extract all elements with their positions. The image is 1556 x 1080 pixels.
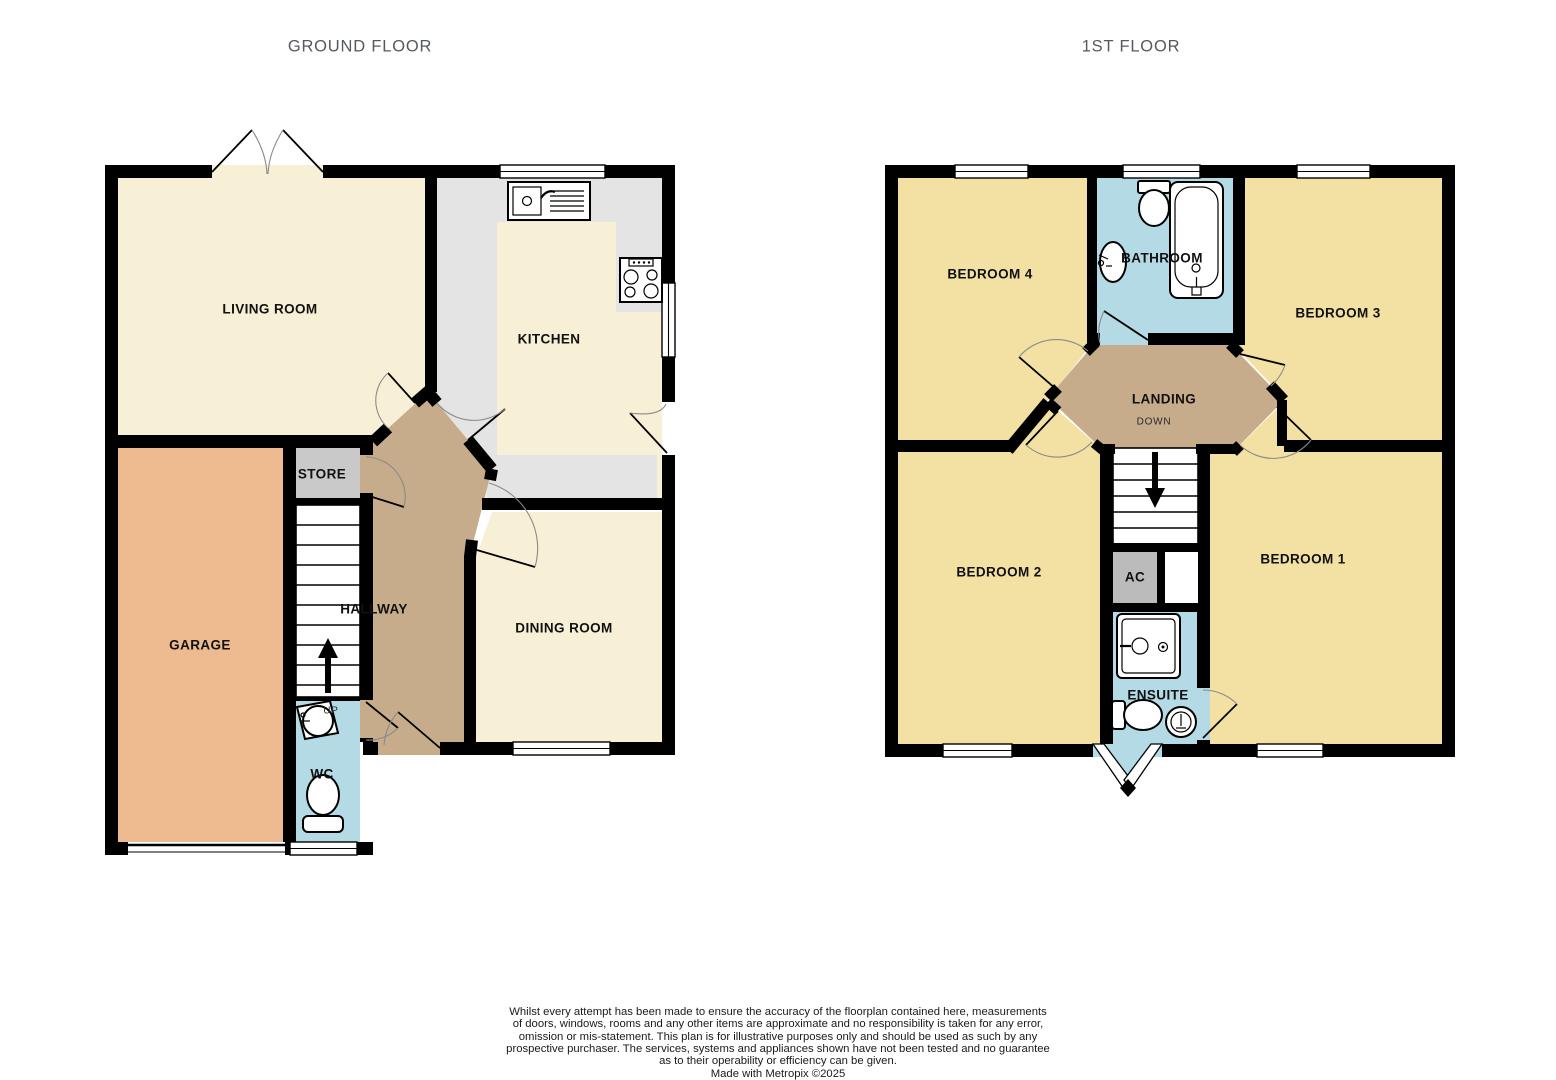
shower-icon [1117, 614, 1180, 678]
bedroom3-window [1297, 165, 1370, 178]
kitchen-sink-icon [508, 182, 590, 220]
ground-floor-title: GROUND FLOOR [288, 38, 432, 57]
bedroom1-floor [1210, 402, 1442, 744]
hallway-label: HALLWAY [340, 602, 408, 617]
store-door-opening [360, 455, 373, 493]
kitchen-window [500, 165, 605, 178]
ensuite-toilet-icon [1112, 700, 1162, 730]
floorplan-canvas: GROUND FLOOR 1ST FLOOR LIVING ROOM KITCH… [0, 0, 1556, 1080]
disclaimer-line: Whilst every attempt has been made to en… [498, 1006, 1058, 1018]
disclaimer-line: of doors, windows, rooms and any other i… [498, 1018, 1058, 1030]
bedroom4-window [955, 165, 1028, 178]
first-stairs-down-icon [1113, 448, 1198, 545]
dining-window [513, 742, 610, 755]
living-room-label: LIVING ROOM [222, 302, 317, 317]
first-floor-title: 1ST FLOOR [1082, 38, 1181, 57]
ac-label: AC [1125, 570, 1145, 585]
bedroom1-label: BEDROOM 1 [1260, 552, 1345, 567]
kitchen-counter-bottom [487, 455, 657, 498]
store-label: STORE [298, 467, 346, 482]
stairs-up-label: UP [323, 706, 339, 717]
garage-door-icon [128, 842, 285, 855]
front-door-opening [378, 742, 440, 755]
ground-floor-plan [105, 130, 675, 855]
dining-room-label: DINING ROOM [515, 621, 612, 636]
bedroom2-label: BEDROOM 2 [956, 565, 1041, 580]
kitchen-label: KITCHEN [518, 332, 581, 347]
garage-label: GARAGE [169, 638, 231, 653]
ensuite-sink-icon [1166, 707, 1196, 737]
bedroom1-window [1257, 744, 1323, 757]
hob-icon [620, 258, 662, 302]
french-door-opening [212, 165, 323, 178]
kitchen-side-window [662, 283, 675, 357]
ensuite-label: ENSUITE [1127, 688, 1188, 703]
credit-line: Made with Metropix ©2025 [498, 1068, 1058, 1080]
stair-void [1165, 552, 1198, 603]
disclaimer-line: prospective purchaser. The services, sys… [498, 1043, 1058, 1055]
bedroom3-label: BEDROOM 3 [1295, 306, 1380, 321]
stairs-down-label: DOWN [1137, 417, 1172, 428]
floorplan-drawing [0, 0, 1556, 1080]
bathroom-label: BATHROOM [1121, 251, 1203, 266]
wc-toilet-icon [303, 775, 343, 832]
bathroom-window [1123, 165, 1200, 178]
disclaimer-line: omission or mis-statement. This plan is … [498, 1031, 1058, 1043]
bay-window-icon [1093, 744, 1162, 797]
bedroom2-window [943, 744, 1012, 757]
landing-label: LANDING [1132, 392, 1196, 407]
wc-label: WC [310, 767, 333, 782]
bath-icon [1170, 182, 1223, 298]
wc-window [290, 842, 357, 855]
bathroom-toilet-icon [1138, 181, 1170, 226]
disclaimer-line: as to their operability or efficiency ca… [498, 1055, 1058, 1067]
kitchen-door-opening [662, 402, 675, 455]
bedroom4-label: BEDROOM 4 [947, 267, 1032, 282]
disclaimer: Whilst every attempt has been made to en… [498, 1006, 1058, 1080]
